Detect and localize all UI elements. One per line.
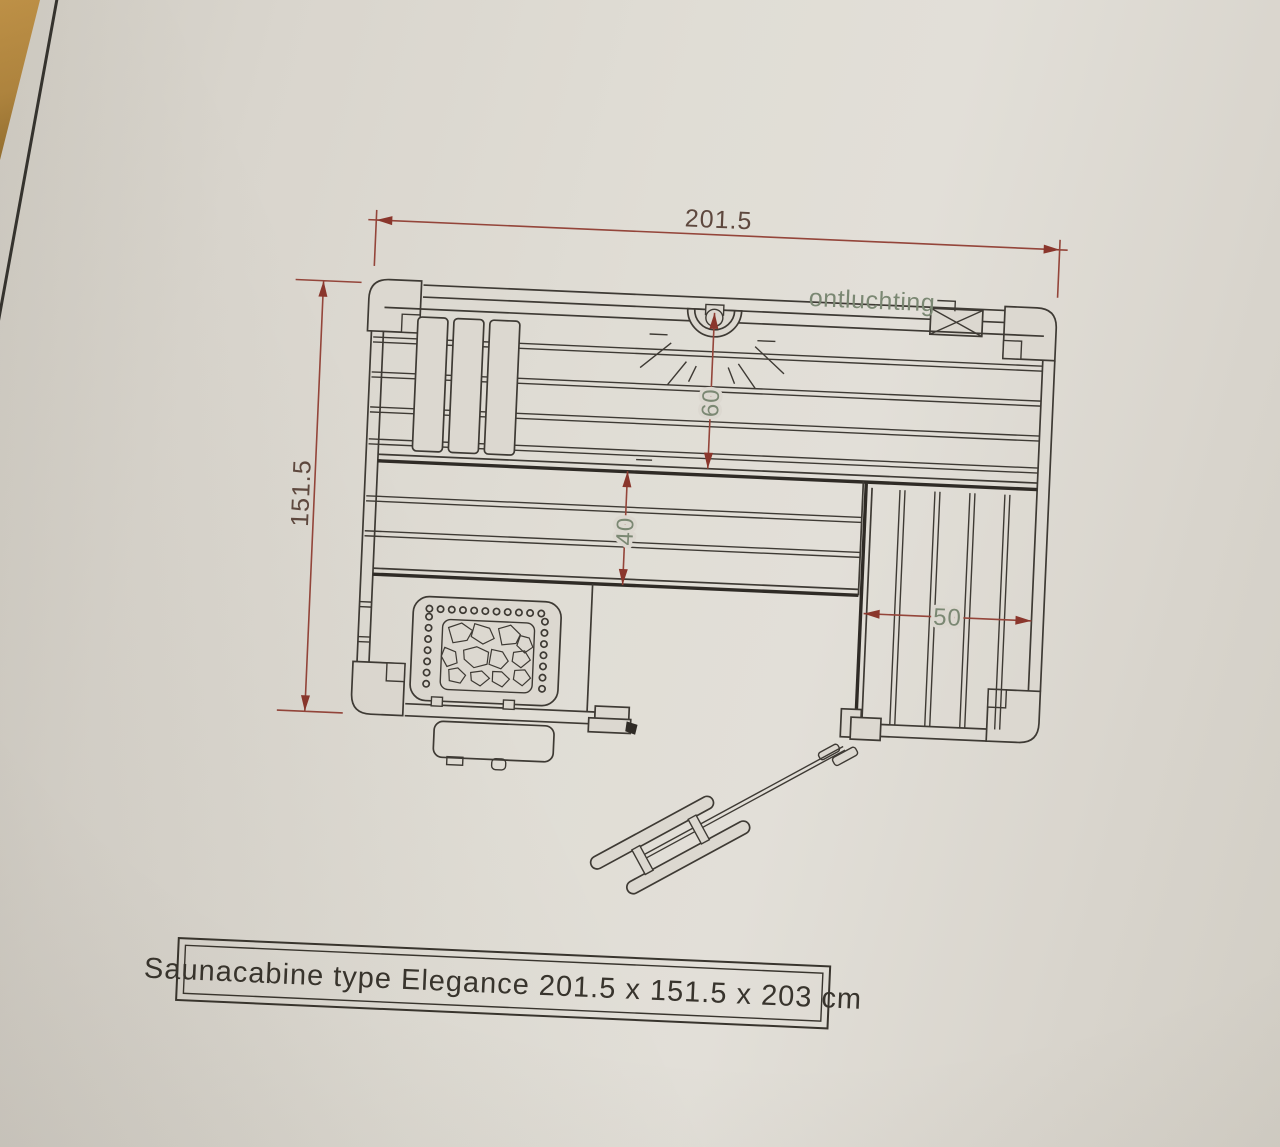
glass-door-open	[588, 722, 866, 905]
corner-post-top-left	[367, 279, 421, 333]
backrest-slats	[412, 317, 520, 455]
vent-label: ontluchting	[808, 284, 936, 317]
corner-post-top-right	[1003, 306, 1057, 360]
floorplan-drawing: 201.5 151.5 60 40 50 ontluchting Saunaca…	[0, 0, 1280, 1147]
door-glass-edge	[641, 747, 845, 860]
sauna-heater	[409, 596, 562, 711]
title-block: Saunacabine type Elegance 201.5 x 151.5 …	[143, 937, 864, 1030]
heater-alcove-panel	[587, 584, 593, 712]
corner-post-bottom-right	[986, 689, 1040, 743]
dimension-label-width: 201.5	[684, 204, 753, 235]
dimension-label-side-bench: 50	[933, 604, 963, 632]
door-jamb-left	[588, 706, 638, 735]
dimension-label-depth: 151.5	[286, 459, 317, 528]
corner-post-bottom-left	[351, 661, 405, 715]
door-jamb-right	[840, 709, 881, 741]
heater-control-box	[433, 721, 555, 772]
photo-background: 201.5 151.5 60 40 50 ontluchting Saunaca…	[0, 0, 1280, 1147]
dimension-label-bench: 40	[611, 516, 639, 546]
dimension-label-light: 60	[697, 388, 725, 418]
title-text: Saunacabine type Elegance 201.5 x 151.5 …	[143, 953, 862, 1016]
